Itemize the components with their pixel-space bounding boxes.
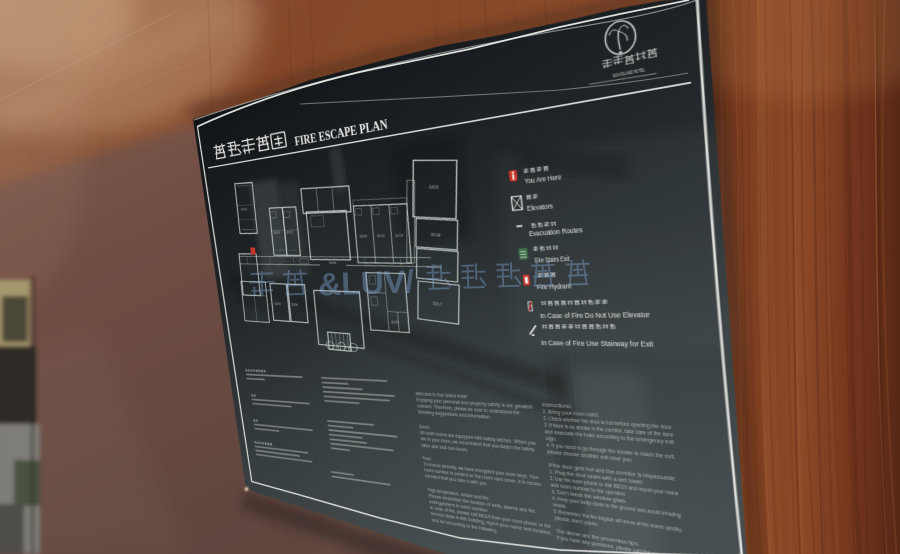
svg-text:&LUV/: &LUV/ — [317, 263, 414, 302]
